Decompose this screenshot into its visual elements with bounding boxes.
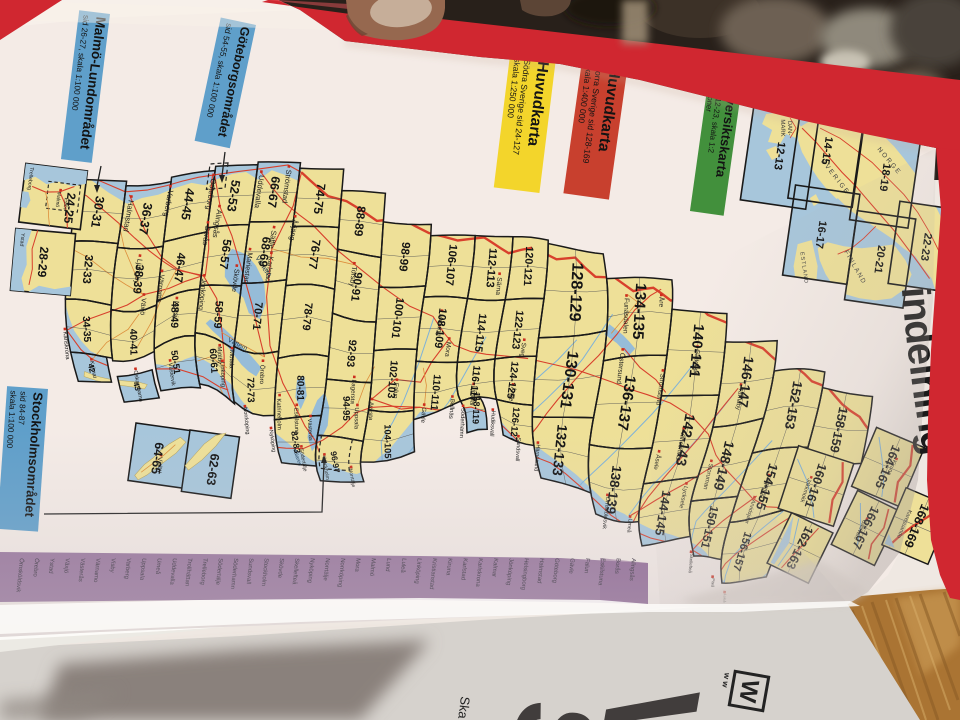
svg-text:Uppsala: Uppsala	[353, 407, 359, 429]
svg-text:Gävle: Gävle	[419, 407, 426, 424]
svg-text:48-49: 48-49	[168, 301, 181, 329]
svg-text:Motala: Motala	[228, 350, 235, 369]
svg-text:Växjö: Växjö	[138, 298, 146, 316]
svg-text:Ystad: Ystad	[18, 233, 25, 247]
svg-text:Avesta: Avesta	[367, 402, 374, 421]
svg-text:34-35: 34-35	[80, 316, 92, 343]
svg-text:Funäsdalen: Funäsdalen	[621, 298, 629, 334]
svg-text:Ska: Ska	[455, 696, 473, 720]
svg-text:120-121: 120-121	[521, 246, 535, 286]
svg-text:40-41: 40-41	[127, 329, 138, 356]
svg-text:Katrineholm: Katrineholm	[275, 398, 282, 430]
svg-text:MARK: MARK	[779, 119, 785, 136]
svg-text:72-73: 72-73	[244, 377, 255, 403]
svg-text:94-95: 94-95	[340, 396, 351, 421]
svg-text:92-93: 92-93	[344, 339, 359, 368]
svg-text:80-81: 80-81	[294, 375, 305, 401]
svg-text:60-61: 60-61	[207, 348, 220, 374]
svg-text:28-29: 28-29	[35, 246, 52, 278]
svg-text:58-59: 58-59	[211, 300, 225, 329]
svg-text:128-129: 128-129	[566, 262, 587, 322]
svg-text:70-71: 70-71	[250, 301, 264, 330]
svg-text:Örebro: Örebro	[258, 365, 266, 385]
svg-text:DAN-: DAN-	[786, 121, 792, 136]
svg-text:118-119: 118-119	[471, 392, 482, 424]
